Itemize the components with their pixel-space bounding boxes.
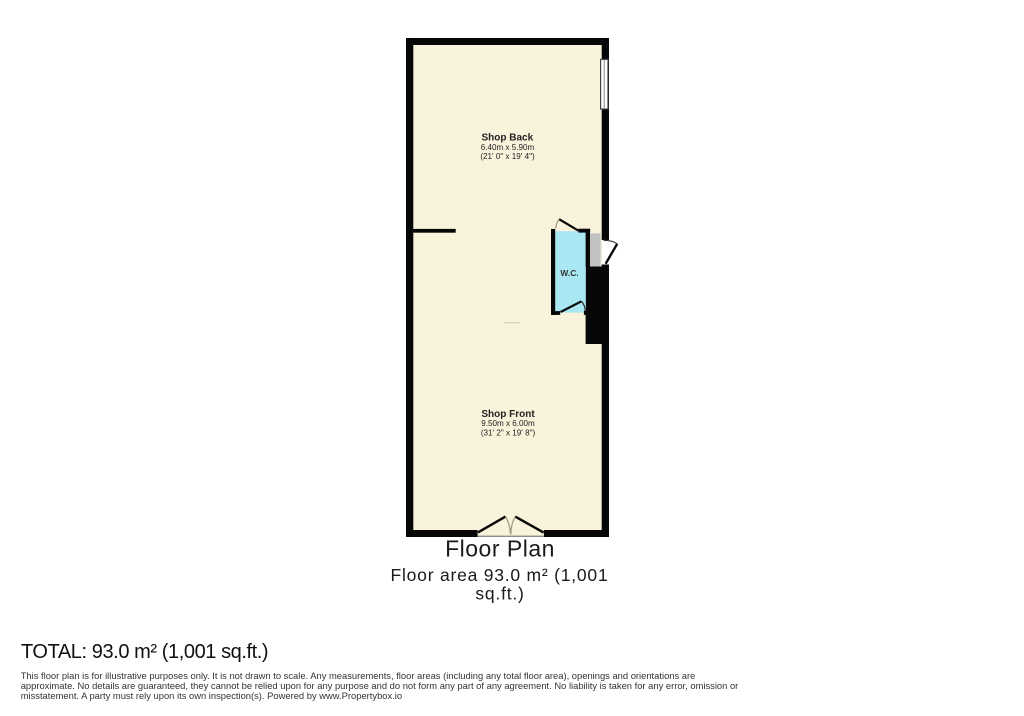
- svg-text:W.C.: W.C.: [560, 268, 578, 278]
- svg-text:misstatement. A party must rel: misstatement. A party must rely upon its…: [21, 690, 402, 701]
- svg-text:6.40m x 5.90m: 6.40m x 5.90m: [481, 143, 535, 152]
- svg-text:(21' 0" x 19' 4"): (21' 0" x 19' 4"): [480, 152, 535, 161]
- svg-text:(31' 2" x 19' 8"): (31' 2" x 19' 8"): [481, 428, 536, 437]
- svg-text:Floor Plan: Floor Plan: [445, 536, 555, 562]
- svg-text:Floor area 93.0 m² (1,001: Floor area 93.0 m² (1,001: [391, 565, 609, 585]
- svg-text:TOTAL: 93.0 m² (1,001 sq.ft.): TOTAL: 93.0 m² (1,001 sq.ft.): [21, 641, 268, 663]
- svg-text:9.50m x 6.00m: 9.50m x 6.00m: [481, 419, 535, 428]
- svg-text:sq.ft.): sq.ft.): [475, 584, 524, 604]
